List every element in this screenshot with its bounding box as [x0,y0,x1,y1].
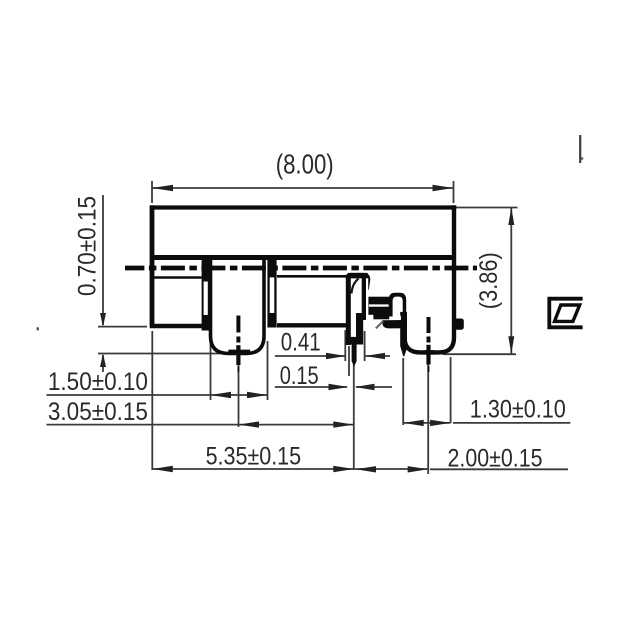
svg-text:5.35±0.15: 5.35±0.15 [206,442,302,470]
svg-text:(3.86): (3.86) [475,252,503,309]
svg-text:3.05±0.15: 3.05±0.15 [48,398,148,426]
svg-text:0.70±0.15: 0.70±0.15 [74,196,102,296]
svg-text:(8.00): (8.00) [276,148,334,179]
svg-text:0.15: 0.15 [280,362,319,390]
svg-text:2.00±0.15: 2.00±0.15 [448,444,543,472]
svg-text:1.50±0.10: 1.50±0.10 [48,368,148,396]
svg-text:0.41: 0.41 [281,328,321,356]
svg-text:1.30±0.10: 1.30±0.10 [470,395,566,423]
